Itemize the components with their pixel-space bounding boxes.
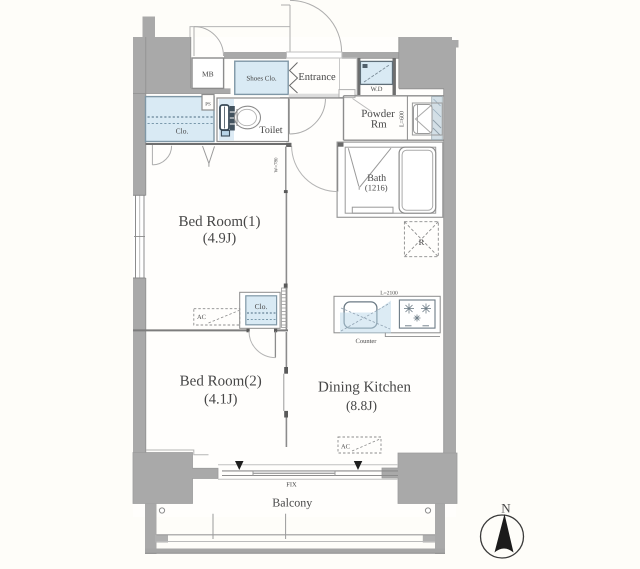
svg-text:L=2100: L=2100 [380, 291, 398, 297]
svg-text:L=600: L=600 [400, 111, 406, 127]
svg-text:N: N [501, 501, 511, 516]
svg-text:Clo.: Clo. [176, 127, 189, 136]
svg-text:Balcony: Balcony [272, 496, 312, 510]
svg-text:R: R [419, 237, 425, 247]
svg-text:Bed Room(1): Bed Room(1) [178, 214, 260, 230]
svg-text:Bed Room(2): Bed Room(2) [180, 374, 262, 390]
svg-text:FIX: FIX [286, 482, 297, 489]
svg-text:W=780: W=780 [274, 157, 280, 173]
svg-text:Clo.: Clo. [255, 302, 268, 311]
svg-text:Counter: Counter [356, 338, 378, 345]
svg-text:AC: AC [341, 444, 350, 451]
svg-text:Dining Kitchen: Dining Kitchen [318, 380, 411, 396]
svg-text:Entrance: Entrance [298, 72, 336, 83]
svg-text:MB: MB [202, 70, 214, 79]
svg-text:PS: PS [205, 102, 211, 108]
svg-text:(8.8J): (8.8J) [346, 398, 377, 413]
svg-text:Toilet: Toilet [259, 125, 282, 136]
svg-text:(4.1J): (4.1J) [204, 391, 238, 407]
svg-text:(4.9J): (4.9J) [203, 231, 237, 247]
svg-text:W.D: W.D [371, 86, 383, 93]
svg-text:Rm: Rm [371, 119, 387, 131]
svg-text:(1216): (1216) [365, 183, 388, 193]
svg-text:AC: AC [197, 314, 206, 321]
svg-text:Shoes Clo.: Shoes Clo. [246, 75, 277, 83]
